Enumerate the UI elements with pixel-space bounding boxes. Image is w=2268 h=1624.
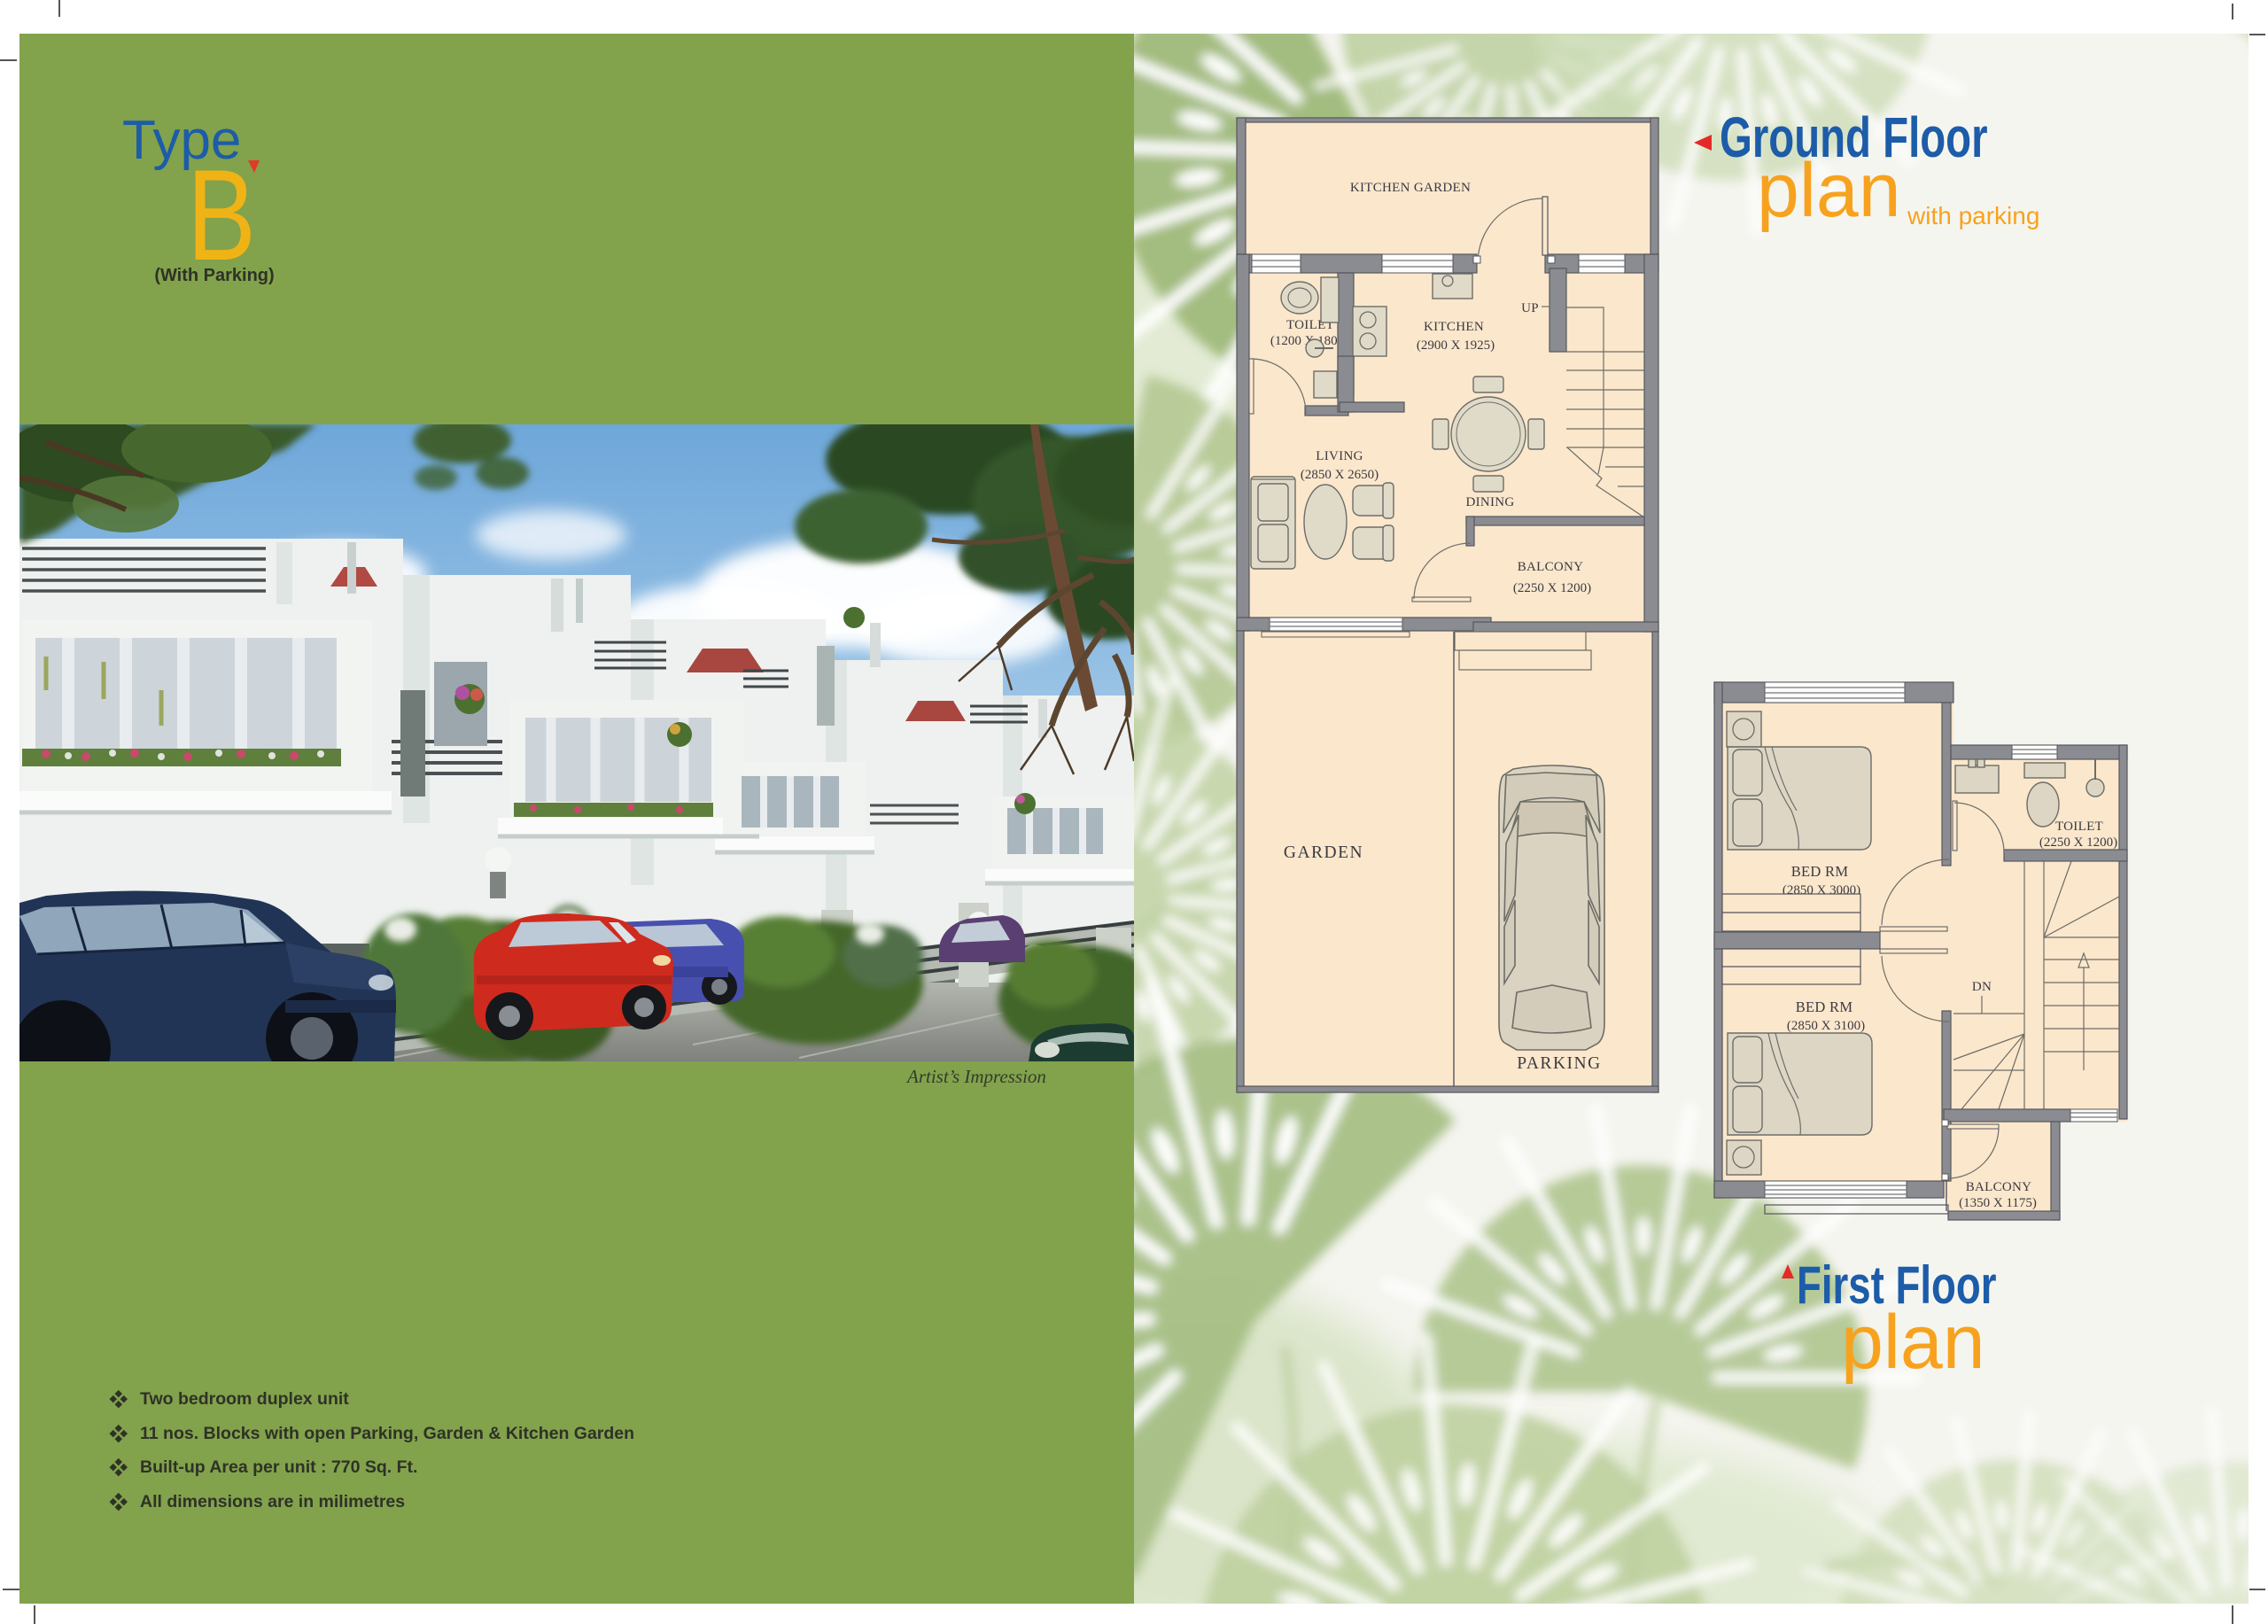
- svg-text:(1350 X 1175): (1350 X 1175): [1959, 1196, 2037, 1210]
- svg-text:UP: UP: [1521, 301, 1539, 315]
- svg-text:BALCONY: BALCONY: [1518, 560, 1584, 574]
- svg-text:KITCHEN: KITCHEN: [1424, 320, 1484, 334]
- svg-text:(2850 X 3100): (2850 X 3100): [1787, 1019, 1865, 1033]
- svg-text:KITCHEN GARDEN: KITCHEN GARDEN: [1350, 181, 1471, 195]
- svg-text:PARKING: PARKING: [1517, 1054, 1601, 1073]
- svg-text:GARDEN: GARDEN: [1284, 843, 1363, 862]
- svg-text:DN: DN: [1972, 980, 1992, 994]
- svg-text:LIVING: LIVING: [1316, 449, 1363, 463]
- svg-text:(2850 X 2650): (2850 X 2650): [1301, 468, 1379, 482]
- svg-text:(2250 X 1200): (2250 X 1200): [1513, 581, 1591, 595]
- svg-text:(2250 X 1200): (2250 X 1200): [2039, 835, 2117, 850]
- svg-text:BED RM: BED RM: [1791, 863, 1849, 880]
- svg-text:BED RM: BED RM: [1796, 998, 1853, 1015]
- svg-text:BALCONY: BALCONY: [1966, 1180, 2032, 1194]
- svg-text:(2900 X 1925): (2900 X 1925): [1417, 338, 1495, 353]
- svg-text:DINING: DINING: [1465, 495, 1514, 509]
- svg-text:TOILET: TOILET: [2055, 820, 2103, 834]
